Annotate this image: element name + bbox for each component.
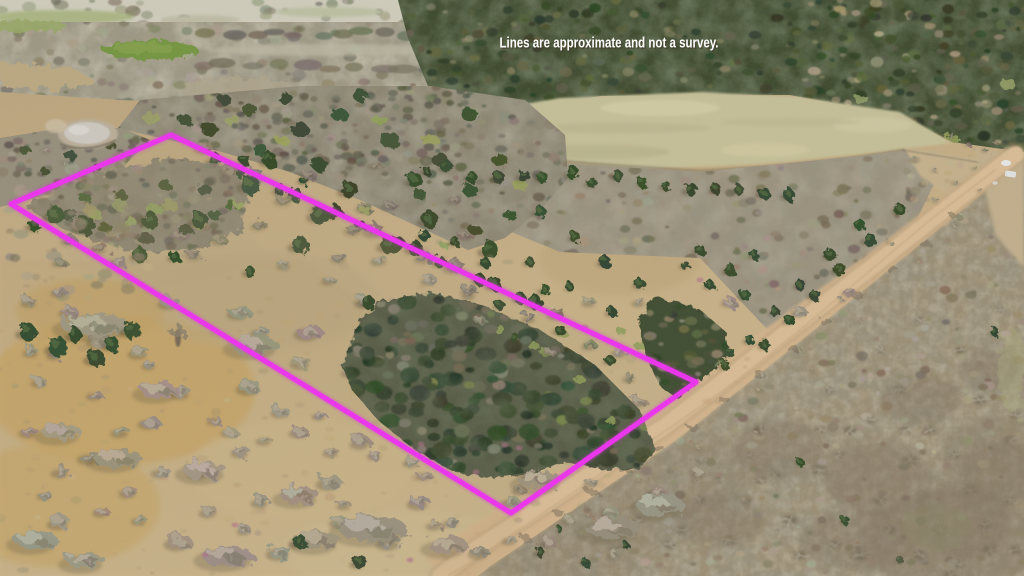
svg-text:Lines are approximate and not: Lines are approximate and not a survey. <box>500 36 719 52</box>
